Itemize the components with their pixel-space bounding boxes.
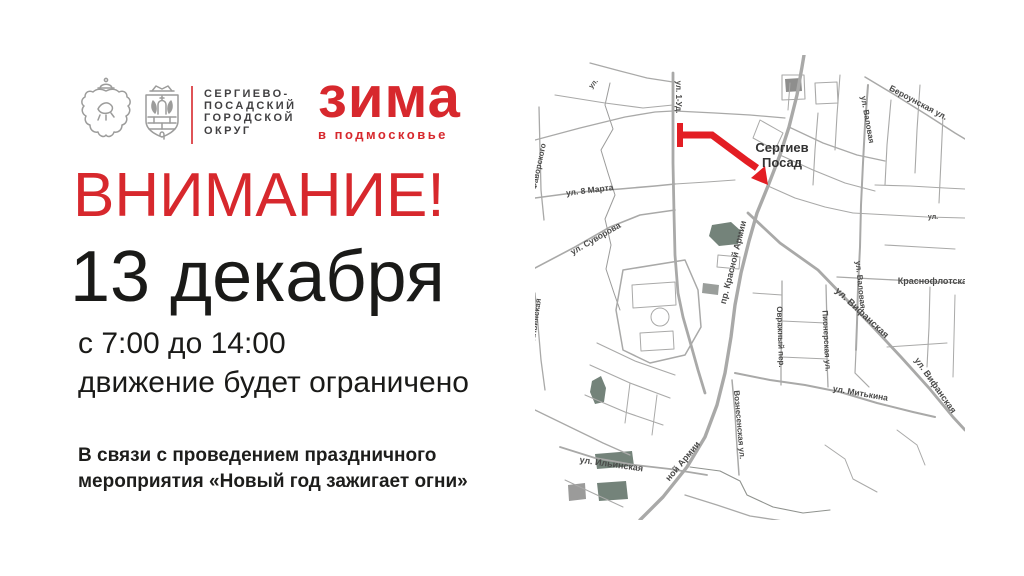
schedule-block: с 7:00 до 14:00 движение будет ограничен… [78, 324, 469, 402]
map-area [702, 283, 719, 295]
street-label: Пионерская ул. [820, 310, 832, 372]
street-label: ул. Вифанская [913, 355, 959, 415]
org-name-line: ОКРУГ [204, 125, 296, 137]
attention-heading: ВНИМАНИЕ! [73, 160, 445, 231]
map-road [813, 113, 818, 185]
date-heading: 13 декабря [70, 236, 445, 318]
closed-route-line [680, 135, 757, 168]
street-label: ул. Митькина [832, 383, 889, 403]
map-road [753, 293, 782, 295]
brand-title: зима [318, 74, 461, 121]
header-divider [191, 86, 193, 144]
brand-subtitle: в подмосковье [318, 127, 461, 142]
map-road [735, 373, 935, 417]
map-road [597, 343, 675, 375]
map-road [675, 180, 735, 184]
map-road [782, 321, 826, 323]
event-details: В связи с проведением праздничного мероп… [78, 443, 468, 495]
map-road [590, 63, 673, 82]
street-label: ул. [928, 214, 938, 221]
map-road [535, 410, 630, 455]
map-road [885, 245, 955, 249]
map-road [939, 115, 943, 203]
map-area [590, 376, 606, 404]
map-road [885, 100, 891, 185]
street-label: Краснофлотская [898, 276, 965, 286]
map-road [815, 82, 838, 104]
road-closure-poster: СЕРГИЕВО- ПОСАДСКИЙ ГОРОДСКОЙ ОКРУГ зима… [0, 0, 1024, 576]
map-road [855, 350, 869, 387]
street-label: ул. 1-Уд. [674, 81, 683, 114]
map-road [781, 357, 828, 359]
org-name-line: СЕРГИЕВО- [204, 88, 296, 100]
map-road [887, 343, 947, 347]
map-road [632, 282, 676, 308]
map-road [535, 111, 673, 140]
map-road [675, 111, 785, 118]
map-road [616, 260, 701, 363]
city-label: Сергиев [755, 140, 808, 155]
winter-in-moscow-region-logo: зима в подмосковье [318, 74, 461, 142]
sergiev-posad-coat-of-arms-icon [136, 83, 188, 143]
map-road [825, 445, 877, 492]
map-road [555, 95, 673, 108]
map-road [768, 186, 853, 213]
street-label: ул. [588, 78, 600, 90]
map-road [625, 383, 630, 423]
org-name-line: ПОСАДСКИЙ [204, 100, 296, 112]
map-road [865, 77, 965, 139]
street-label: Вознесенская ул. [732, 390, 747, 459]
org-name-line: ГОРОДСКОЙ [204, 112, 296, 124]
time-range-text: с 7:00 до 14:00 [78, 324, 469, 363]
city-map: ул. 1-Уд.Фаворскогоул. 8 Мартаул. Суворо… [535, 55, 965, 520]
event-details-line: В связи с проведением праздничного [78, 443, 468, 469]
map-road [585, 395, 663, 425]
map-road [673, 73, 705, 393]
city-label: Посад [762, 155, 803, 170]
map-road [853, 213, 965, 218]
map-road [652, 395, 657, 435]
city-map-svg: ул. 1-Уд.Фаворскогоул. 8 Мартаул. Суворо… [535, 55, 965, 520]
map-area [597, 481, 628, 501]
map-road [651, 308, 669, 326]
restriction-text: движение будет ограничено [78, 363, 469, 402]
org-name: СЕРГИЕВО- ПОСАДСКИЙ ГОРОДСКОЙ ОКРУГ [204, 88, 296, 137]
street-label: Овражный пер. [775, 306, 786, 368]
street-label: ул. Валовая [859, 95, 876, 144]
map-road [875, 185, 965, 189]
map-road [897, 430, 925, 465]
map-road [685, 495, 783, 520]
street-label: ул. Суворова [569, 220, 623, 257]
map-road [640, 331, 674, 351]
map-road [690, 467, 830, 513]
map-road [927, 287, 930, 367]
street-label: ул. Ильинская [535, 298, 543, 356]
event-details-line: мероприятия «Новый год зажигает огни» [78, 469, 468, 495]
map-road [953, 295, 955, 377]
moscow-oblast-coat-of-arms-icon [80, 76, 132, 142]
street-label: ной Армии [663, 439, 702, 483]
street-label: ул. 8 Марта [565, 182, 614, 198]
map-road [601, 83, 620, 310]
